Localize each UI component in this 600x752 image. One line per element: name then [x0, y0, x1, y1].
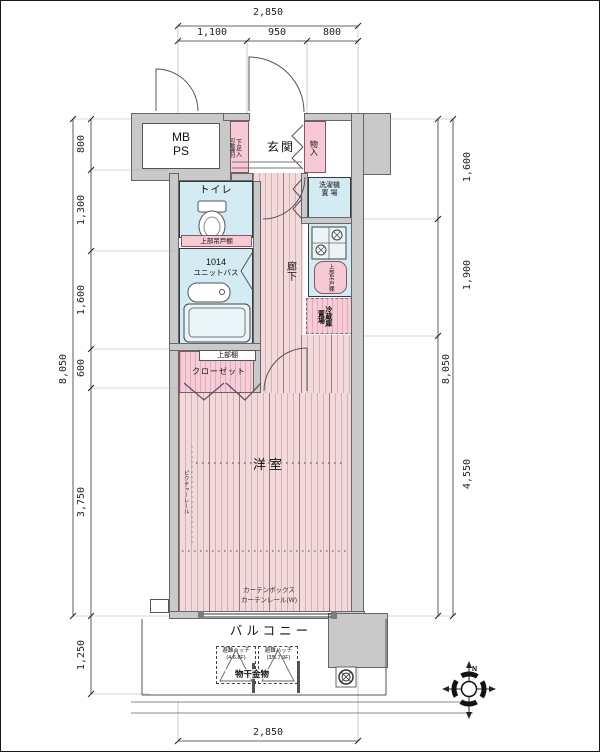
dim-right-total: 8,050 — [442, 339, 452, 399]
picture-rail-label: ピクチャーレール — [182, 453, 188, 531]
compass-north-label: N — [472, 666, 477, 673]
hatch-2-name: 避難ハッチ — [259, 648, 298, 655]
drain-box — [336, 667, 356, 687]
fridge-label: 冷蔵庫置場 — [317, 301, 332, 332]
closet-label: クローゼット — [184, 367, 254, 377]
dim-top-seg3: 800 — [302, 28, 362, 38]
washer-label: 洗濯機 置 場 — [309, 182, 350, 199]
floor-plan: N MB PS 玄関 下足入可動棚付 物入 トイレ 上部吊戸棚 洗濯機 置 場 … — [0, 0, 600, 752]
shoe-cabinet-label: 下足入可動棚付 — [229, 123, 241, 173]
corridor-floor-lower — [301, 335, 353, 393]
mb-label: MB — [142, 130, 220, 144]
bath-name: ユニットバス — [181, 268, 251, 277]
dim-right-lower: 4,550 — [463, 444, 473, 504]
fridge-line2: 置場 — [317, 301, 324, 332]
drain-outer — [339, 670, 353, 684]
genkan-label: 玄関 — [253, 140, 309, 154]
dim-top-seg2: 950 — [247, 28, 307, 38]
mbps-label: MB PS — [142, 130, 220, 159]
dim-top-total: 2,850 — [228, 8, 308, 18]
hatch-1-label: 避難ハッチ (4.6.8F) — [217, 648, 255, 661]
main-room-label: 洋室 — [243, 457, 295, 473]
monoire-label: 物入 — [309, 126, 317, 170]
hatch-1-floors: (4.6.8F) — [217, 655, 255, 662]
balcony-label: バルコニー — [225, 624, 317, 639]
hatch-2-floors: (3/5.7.9F) — [259, 655, 298, 662]
compass-icon: N — [442, 661, 496, 719]
corridor-label: 廊下 — [284, 253, 295, 289]
pipe-space — [150, 599, 169, 613]
dim-left-seg5: 3,750 — [77, 472, 87, 532]
toilet-label: トイレ — [184, 185, 248, 197]
drain-inner — [342, 673, 350, 681]
dim-top-seg1: 1,100 — [182, 28, 242, 38]
dim-right-seg2: 1,900 — [463, 245, 473, 305]
right-wall — [351, 113, 364, 619]
bath-size: 1014 — [181, 257, 251, 268]
top-wall-left — [223, 113, 250, 121]
toilet-top-wall — [231, 173, 253, 181]
bath-corridor-wall — [253, 181, 261, 393]
dim-left-seg1: 800 — [77, 114, 87, 174]
site-boundary-lines — [131, 702, 473, 713]
kitchen-shelf-label: 上部吊戸棚 — [327, 263, 333, 293]
curtain-box-label: カーテンボックス — [199, 587, 339, 595]
hatch-1-name: 避難ハッチ — [217, 648, 255, 655]
fridge-line1: 冷蔵庫 — [324, 301, 331, 332]
dim-bottom-total: 2,850 — [228, 728, 308, 738]
left-wall — [169, 173, 179, 619]
window-opening — [204, 612, 331, 618]
drain-cross — [341, 672, 351, 682]
laundry-hardware-label: 物干金物 — [225, 669, 279, 679]
bottom-right-column — [328, 613, 388, 668]
shoe-cabinet-name: 下足入 — [234, 123, 240, 173]
bath-label: 1014 ユニットバス — [181, 257, 251, 277]
dim-left-balcony: 1,250 — [77, 625, 87, 685]
shoe-cabinet-note: 可動棚付 — [229, 123, 234, 173]
washer-line2: 置 場 — [309, 190, 350, 198]
ps-label: PS — [142, 144, 220, 158]
toilet-shelf-label: 上部吊戸棚 — [181, 235, 252, 247]
dim-left-seg4: 600 — [77, 338, 87, 398]
dim-left-total: 8,050 — [59, 339, 69, 399]
dim-right-seg1: 1,600 — [463, 137, 473, 197]
curtain-rail-label: カーテンレール(W) — [199, 597, 339, 605]
washer-bottom-wall — [301, 217, 352, 224]
dim-left-seg2: 1,300 — [77, 180, 87, 240]
dim-left-seg3: 1,600 — [77, 270, 87, 330]
hatch-2-label: 避難ハッチ (3/5.7.9F) — [259, 648, 298, 661]
closet-shelf-label: 上部棚 — [199, 350, 256, 361]
main-room-floor — [179, 393, 353, 611]
